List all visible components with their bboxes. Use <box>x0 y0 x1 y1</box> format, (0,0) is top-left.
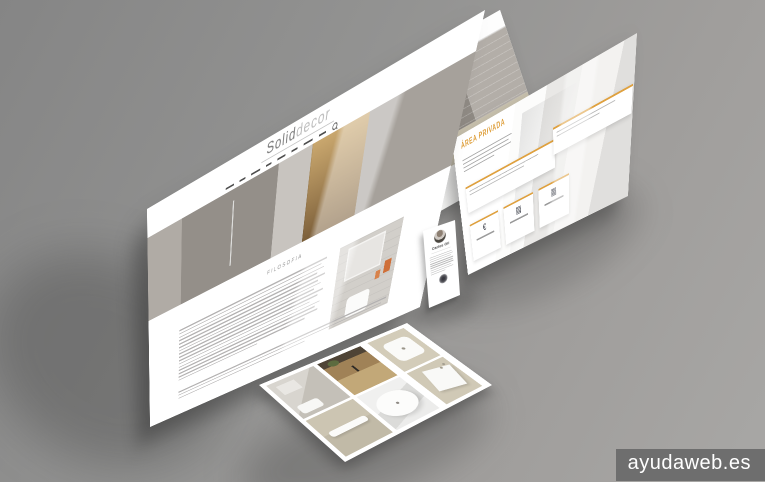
business-card: Carlos Gil <box>423 220 460 308</box>
nav-item[interactable] <box>319 130 326 136</box>
nav-item[interactable] <box>291 147 297 152</box>
photo-towel <box>374 269 380 279</box>
nav-item[interactable] <box>240 176 246 181</box>
photo-mirror <box>344 230 387 282</box>
watermark[interactable]: ayudaweb.es <box>616 449 765 481</box>
mockup-stage: Soliddecor FILOSOFIA <box>0 0 765 482</box>
company-stamp-logo <box>439 273 448 285</box>
photo-towel <box>383 258 392 274</box>
nav-item[interactable] <box>266 162 271 167</box>
